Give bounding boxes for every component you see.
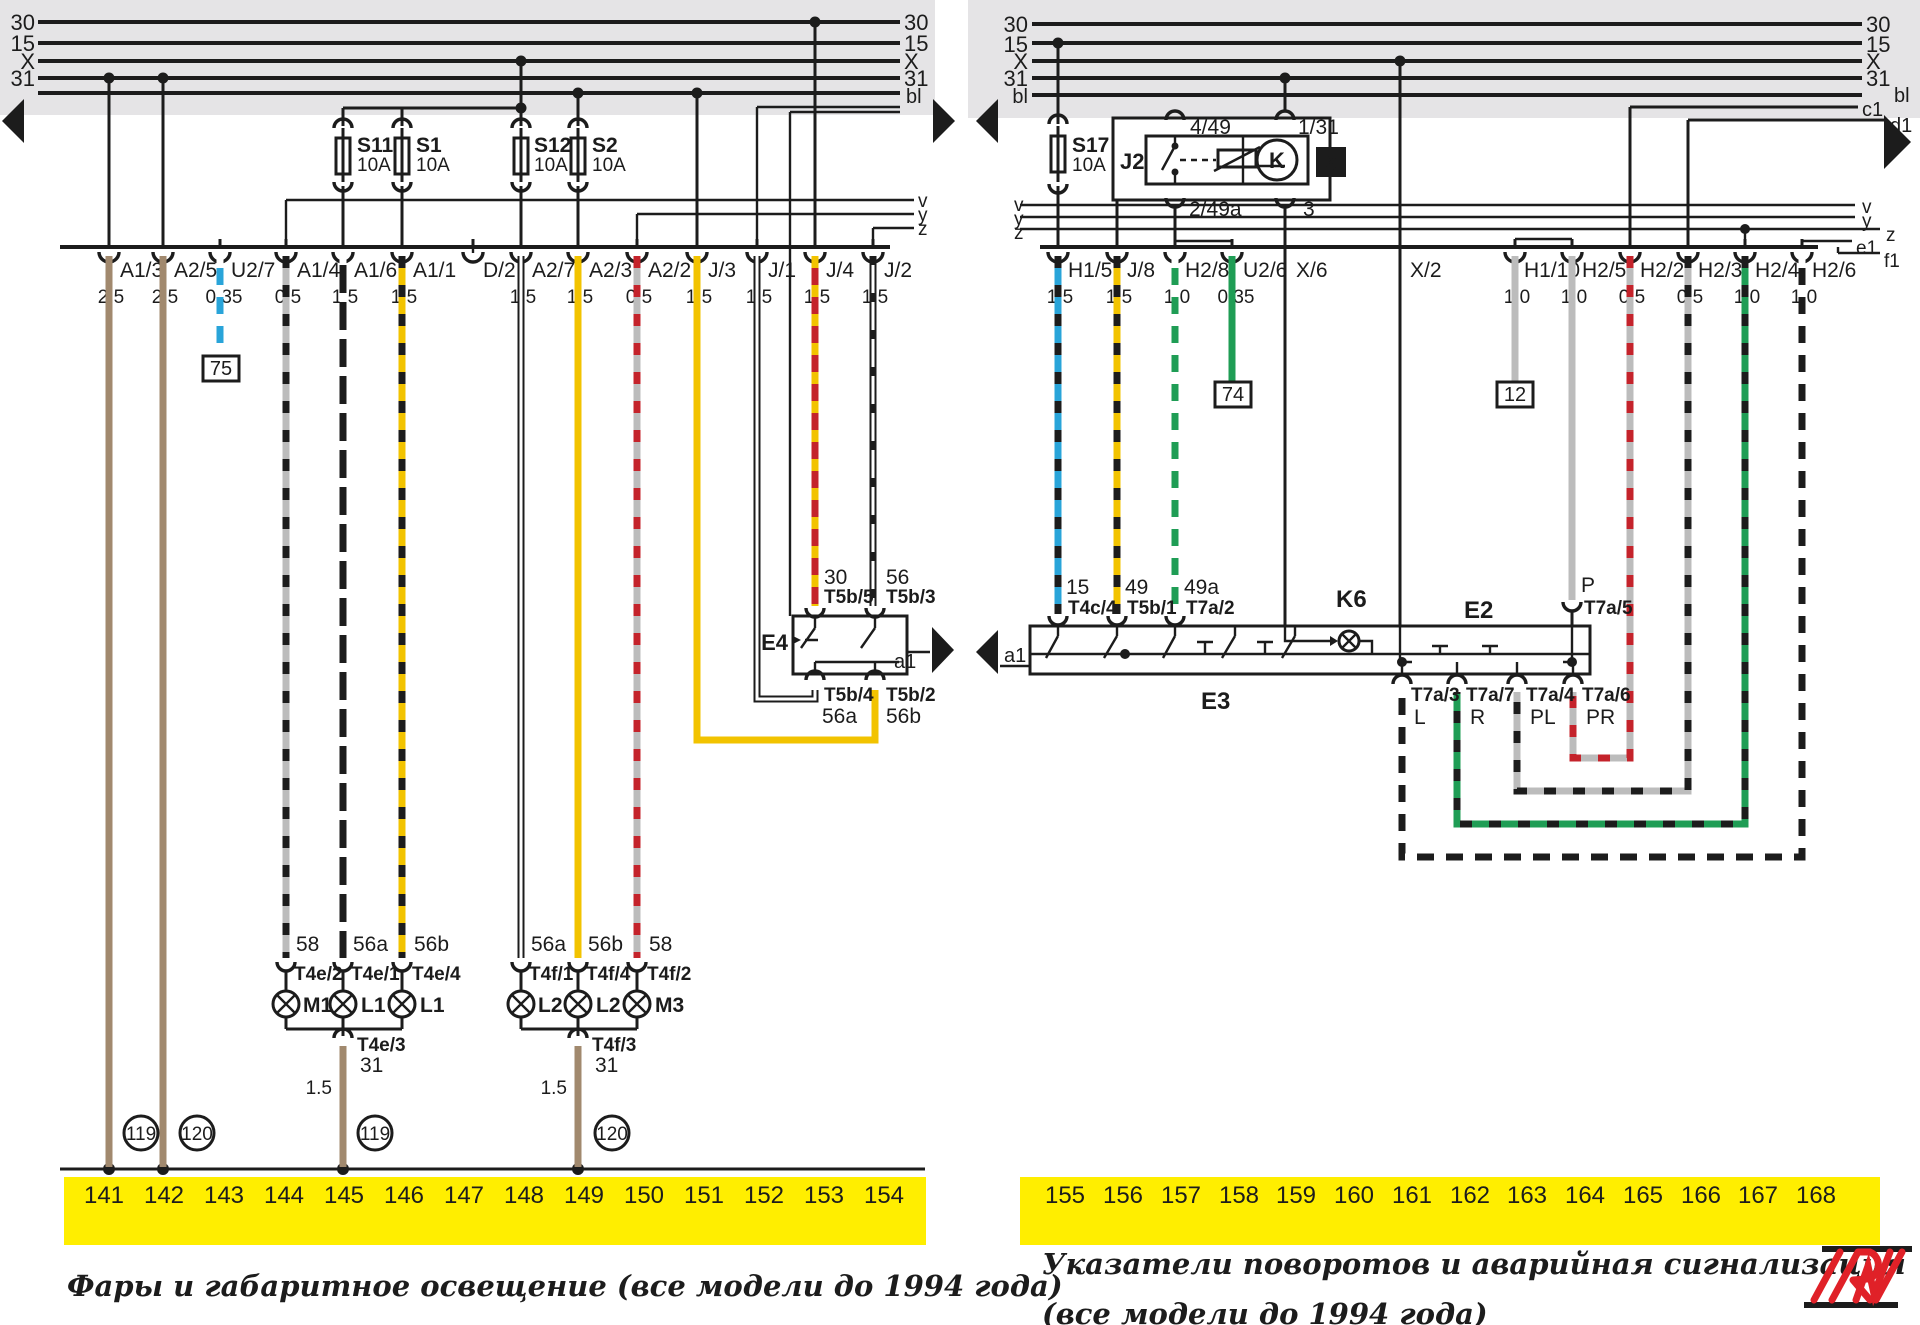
sw-terminal-t4c4: T4c/4: [1068, 598, 1117, 619]
e4-pin-56a: 56a: [822, 705, 857, 728]
relay-badge-6: 6: [1325, 152, 1337, 175]
r-bus-bl-right: bl: [1894, 85, 1910, 107]
fuse-s2-amps: 10A: [592, 155, 626, 176]
lamp1-terminal-2: T4e/1: [351, 964, 400, 985]
svg-text:144: 144: [264, 1182, 304, 1209]
left-junction-dots: [103, 17, 821, 1176]
svg-text:146: 146: [384, 1182, 424, 1209]
e2-label: E2: [1464, 597, 1493, 624]
svg-text:A2/5: A2/5: [174, 259, 217, 282]
svg-text:J/8: J/8: [1127, 259, 1155, 282]
svg-text:151: 151: [684, 1182, 724, 1209]
svg-text:152: 152: [744, 1182, 784, 1209]
svg-text:165: 165: [1623, 1182, 1663, 1209]
a1-label: a1: [1004, 645, 1026, 667]
svg-text:119: 119: [126, 1124, 156, 1145]
fuse-s12-amps: 10A: [534, 155, 568, 176]
svg-text:H2/3: H2/3: [1698, 259, 1742, 282]
left-track-bar: [64, 1177, 926, 1245]
fuse-s1-amps: 10A: [416, 155, 450, 176]
svg-text:157: 157: [1161, 1182, 1201, 1209]
k6-label: K6: [1336, 586, 1367, 613]
svg-text:147: 147: [444, 1182, 484, 1209]
r-bus-bl-left: bl: [1012, 86, 1028, 108]
sw-terminal-t7a4: T7a/4: [1526, 685, 1575, 706]
edge-z-right: z: [1886, 225, 1896, 246]
lamp2-pin-56b: 56b: [588, 933, 623, 956]
lamp1-pin-58: 58: [296, 933, 319, 956]
svg-text:J/2: J/2: [884, 259, 912, 282]
svg-text:158: 158: [1219, 1182, 1259, 1209]
bus-label-bl: bl: [906, 86, 922, 108]
r-bus-c1: c1: [1862, 99, 1883, 121]
relay-k-symbol: K: [1269, 148, 1285, 173]
svg-text:H2/2: H2/2: [1640, 259, 1684, 282]
svg-text:D/2: D/2: [483, 259, 516, 282]
continuation-arrow-a1-icon: [976, 630, 998, 674]
lamp1-ground-pin: 31: [360, 1054, 383, 1077]
svg-text:153: 153: [804, 1182, 844, 1209]
svg-text:H2/4: H2/4: [1755, 259, 1800, 282]
e3-label: E3: [1201, 688, 1230, 715]
sw-terminal-t7a2: T7a/2: [1186, 598, 1235, 619]
svg-text:A2/7: A2/7: [532, 259, 575, 282]
svg-text:162: 162: [1450, 1182, 1490, 1209]
svg-text:141: 141: [84, 1182, 124, 1209]
sw-pin-p: P: [1581, 574, 1595, 597]
svg-text:0.35: 0.35: [206, 287, 243, 308]
svg-text:J/3: J/3: [708, 259, 736, 282]
lamp2-terminal-2: T4f/4: [586, 964, 631, 985]
ground-ref-12: 12: [1504, 384, 1526, 406]
svg-text:120: 120: [181, 1124, 213, 1145]
svg-text:168: 168: [1796, 1182, 1836, 1209]
bus-label-31-left: 31: [11, 66, 35, 91]
svg-text:154: 154: [864, 1182, 904, 1209]
lamp-group-left: [273, 962, 415, 1167]
bulb-m3: M3: [655, 994, 684, 1017]
fuse-s17-name: S17: [1072, 134, 1109, 157]
sw-pin-15: 15: [1066, 576, 1089, 599]
svg-text:U2/6: U2/6: [1243, 259, 1287, 282]
fuse-s11-amps: 10A: [357, 155, 391, 176]
sw-terminal-t7a3: T7a/3: [1411, 685, 1460, 706]
e4-light-switch: [793, 608, 954, 680]
bulb-l2b: L2: [596, 994, 621, 1017]
right-feed-lines: [1020, 43, 1880, 626]
svg-text:A1/6: A1/6: [354, 259, 397, 282]
right-panel: 30 15 X 31 bl 30 15 X 31 bl c1 d1 S17 10…: [968, 0, 1920, 1325]
sw-pin-l: L: [1414, 706, 1426, 729]
svg-text:159: 159: [1276, 1182, 1316, 1209]
left-wires: [109, 256, 875, 1167]
svg-text:120: 120: [596, 1124, 628, 1145]
svg-text:156: 156: [1103, 1182, 1143, 1209]
lamp1-ground-terminal: T4e/3: [357, 1035, 406, 1056]
relay-pin-249a: 2/49a: [1189, 198, 1242, 221]
sw-terminal-t7a7: T7a/7: [1466, 685, 1515, 706]
svg-text:X/2: X/2: [1410, 259, 1442, 282]
lamp2-ground-pin: 31: [595, 1054, 618, 1077]
relay-pin-449: 4/49: [1190, 116, 1231, 139]
e4-terminal-t5b5: T5b/5: [824, 587, 874, 608]
svg-text:145: 145: [324, 1182, 364, 1209]
svg-text:143: 143: [204, 1182, 244, 1209]
lamp2-terminal-1: T4f/1: [529, 964, 574, 985]
svg-text:167: 167: [1738, 1182, 1778, 1209]
svg-text:A1/1: A1/1: [413, 259, 456, 282]
sw-pin-r: R: [1470, 706, 1485, 729]
svg-text:163: 163: [1507, 1182, 1547, 1209]
right-wires: [1058, 256, 1802, 857]
fuse-s12-name: S12: [534, 134, 571, 157]
edge-label-z-left-panel: z: [918, 219, 928, 240]
e4-terminal-t5b3: T5b/3: [886, 587, 936, 608]
edge-y-right: y: [1862, 211, 1872, 232]
svg-text:A2/2: A2/2: [648, 259, 691, 282]
fuse-s2-name: S2: [592, 134, 618, 157]
e4-a1-label: a1: [894, 651, 916, 673]
svg-text:149: 149: [564, 1182, 604, 1209]
fuse-s11-name: S11: [357, 134, 394, 157]
ground-points: 119 120 119 120: [124, 1116, 629, 1150]
svg-text:142: 142: [144, 1182, 184, 1209]
ground-ref-74: 74: [1222, 384, 1244, 406]
svg-text:164: 164: [1565, 1182, 1605, 1209]
bulb-l1b: L1: [420, 994, 445, 1017]
svg-text:150: 150: [624, 1182, 664, 1209]
right-caption-line2: (все модели до 1994 года): [1042, 1297, 1488, 1325]
continuation-arrow-right-icon: [933, 99, 955, 143]
bulb-l1a: L1: [361, 994, 386, 1017]
right-caption-line1: Указатели поворотов и аварийная сигнализ…: [1042, 1247, 1906, 1281]
lamp1-ground-gauge: 1.5: [306, 1078, 332, 1099]
fuse-s17: [1049, 115, 1067, 193]
relay-pin-3: 3: [1303, 198, 1315, 221]
svg-text:H2/6: H2/6: [1812, 259, 1856, 282]
fuse-s17-amps: 10A: [1072, 155, 1106, 176]
left-panel: 30 15 X 31 30 15 X 31 bl v y z: [0, 0, 1063, 1303]
svg-text:J/4: J/4: [826, 259, 854, 282]
sw-terminal-t5b1: T5b/1: [1127, 598, 1177, 619]
sw-pin-pl: PL: [1530, 706, 1556, 729]
svg-text:0.35: 0.35: [1218, 287, 1255, 308]
svg-text:J/1: J/1: [768, 259, 796, 282]
svg-text:155: 155: [1045, 1182, 1085, 1209]
e4-terminal-t5b4: T5b/4: [824, 685, 874, 706]
svg-text:H2/8: H2/8: [1185, 259, 1229, 282]
lamp2-pin-56a: 56a: [531, 933, 566, 956]
svg-text:166: 166: [1681, 1182, 1721, 1209]
ground-ref-75: 75: [210, 358, 232, 380]
svg-text:U2/7: U2/7: [231, 259, 275, 282]
svg-text:160: 160: [1334, 1182, 1374, 1209]
bulb-l2a: L2: [538, 994, 563, 1017]
edge-e1-right: e1: [1856, 238, 1877, 259]
lamp1-terminal-1: T4e/2: [294, 964, 343, 985]
sw-terminal-t7a6: T7a/6: [1582, 685, 1631, 706]
svg-text:H2/5: H2/5: [1582, 259, 1626, 282]
sw-pin-49a: 49a: [1184, 576, 1219, 599]
left-bus-band: [0, 0, 935, 115]
svg-text:A2/3: A2/3: [589, 259, 632, 282]
lamp2-ground-terminal: T4f/3: [592, 1035, 636, 1056]
bulb-m1: M1: [303, 994, 332, 1017]
svg-text:A1/3: A1/3: [120, 259, 163, 282]
sw-terminal-t7a5: T7a/5: [1584, 598, 1633, 619]
edge-z-left: z: [1014, 223, 1024, 244]
lamp1-terminal-3: T4e/4: [412, 964, 461, 985]
lamp2-pin-58: 58: [649, 933, 672, 956]
fuse-s1-name: S1: [416, 134, 442, 157]
right-connector-labels: H1/51.5 J/81.5 H2/81.0 U2/60.35 X/6 X/2 …: [1047, 259, 1857, 308]
schematic-canvas: 30 15 X 31 30 15 X 31 bl v y z: [0, 0, 1920, 1325]
edge-f1-right: f1: [1884, 251, 1900, 272]
lamp2-terminal-3: T4f/2: [647, 964, 691, 985]
svg-text:X/6: X/6: [1296, 259, 1328, 282]
r-bus-31-right: 31: [1866, 66, 1890, 91]
e4-label: E4: [761, 630, 789, 655]
sw-pin-pr: PR: [1586, 706, 1615, 729]
lamp1-pin-56b: 56b: [414, 933, 449, 956]
svg-text:A1/4: A1/4: [297, 259, 341, 282]
e4-pin-56: 56: [886, 566, 909, 589]
lamp2-ground-gauge: 1.5: [541, 1078, 567, 1099]
svg-text:119: 119: [360, 1124, 390, 1145]
sw-pin-49: 49: [1125, 576, 1148, 599]
relay-pin-131: 1/31: [1298, 116, 1339, 139]
e4-pin-56b: 56b: [886, 705, 921, 728]
wiring-diagram-page: 30 15 X 31 30 15 X 31 bl v y z: [0, 0, 1920, 1325]
svg-text:148: 148: [504, 1182, 544, 1209]
continuation-arrow-e4-icon: [932, 627, 954, 673]
svg-text:H1/5: H1/5: [1068, 259, 1112, 282]
svg-text:161: 161: [1392, 1182, 1432, 1209]
left-caption: Фары и габаритное освещение (все модели …: [67, 1269, 1063, 1303]
relay-j2-label: J2: [1120, 149, 1144, 174]
lamp1-pin-56a: 56a: [353, 933, 388, 956]
e4-pin-30: 30: [824, 566, 847, 589]
e4-terminal-t5b2: T5b/2: [886, 685, 936, 706]
